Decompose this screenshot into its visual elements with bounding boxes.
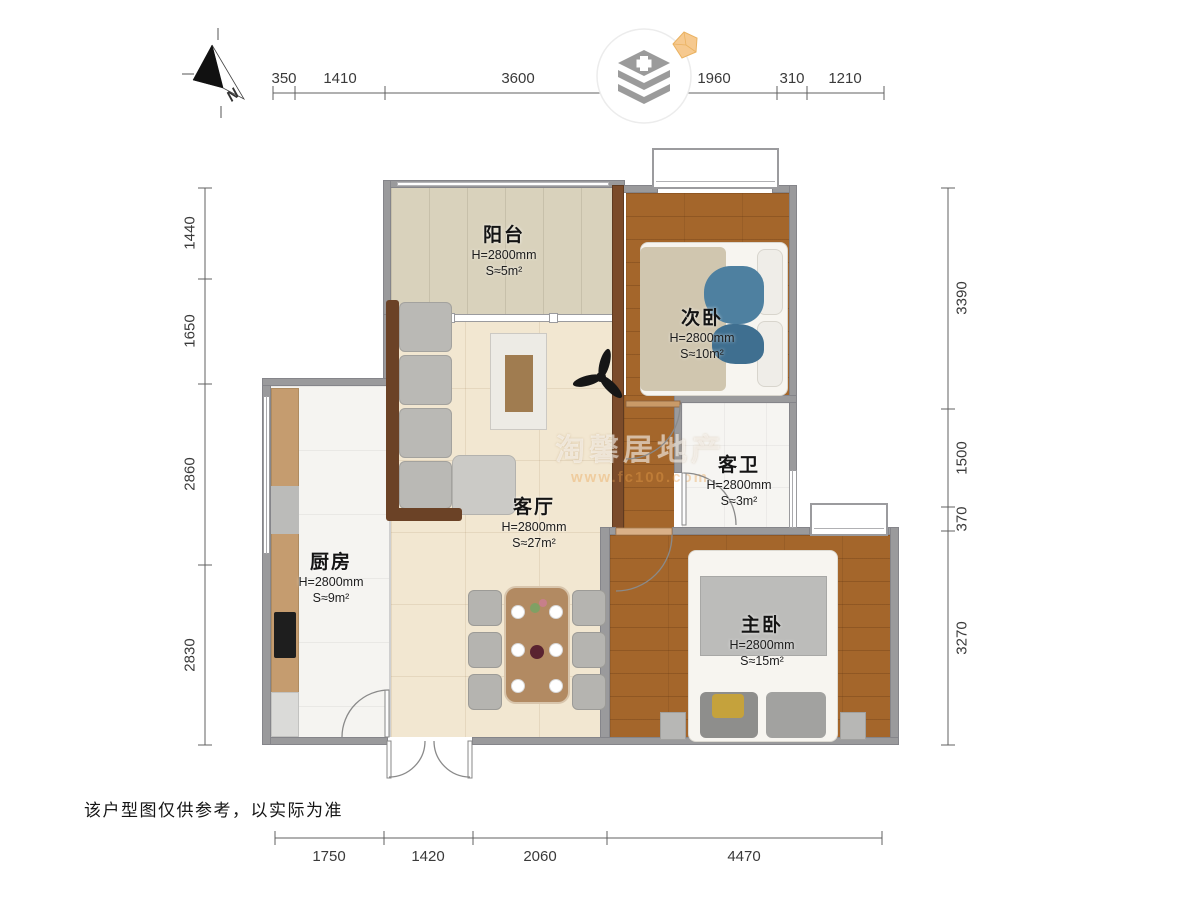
dim-bottom-0: 1750 [312,848,345,865]
room-label-balcony: 阳台 H=2800mm S≈5m² [472,220,537,279]
room-label-living-room: 客厅 H=2800mm S≈27m² [502,492,567,551]
kitchen-door [342,690,389,737]
north-compass: N [182,28,244,118]
disclaimer-text: 该户型图仅供参考，以实际为准 [84,796,343,821]
dim-bottom-3: 4470 [727,848,760,865]
table-bowl [530,645,544,659]
room-label-kitchen: 厨房 H=2800mm S≈9m² [299,547,364,606]
floorplan-canvas: N [0,0,1200,900]
second-bedroom-door [626,401,680,459]
entry-double-door [387,741,472,778]
plan-overlay: N [0,0,1200,900]
dim-bottom-2: 2060 [523,848,556,865]
dim-top-1: 1410 [323,70,356,87]
dimension-lines [198,86,955,845]
dim-top-3: 1960 [697,70,730,87]
room-label-second-bedroom: 次卧 H=2800mm S≈10m² [670,303,735,362]
dim-right-1: 1500 [954,441,971,474]
dim-left-0: 1440 [182,216,199,249]
dim-right-3: 3270 [954,621,971,654]
dim-top-5: 1210 [828,70,861,87]
room-label-master-bedroom: 主卧 H=2800mm S≈15m² [730,610,795,669]
dim-top-0: 350 [271,70,296,87]
dim-left-1: 1650 [182,314,199,347]
dim-top-2: 3600 [501,70,534,87]
room-label-guest-bathroom: 客卫 H=2800mm S≈3m² [707,450,772,509]
ceiling-fan-icon [572,348,625,401]
master-bedroom-door [616,528,672,591]
dim-top-4: 310 [779,70,804,87]
layers-button[interactable] [597,29,697,123]
dim-left-3: 2830 [182,638,199,671]
dim-bottom-1: 1420 [411,848,444,865]
dim-right-2: 370 [954,506,971,531]
dim-left-2: 2860 [182,457,199,490]
table-flowers [530,603,540,613]
dim-right-0: 3390 [954,281,971,314]
dining-tableware [512,599,563,693]
